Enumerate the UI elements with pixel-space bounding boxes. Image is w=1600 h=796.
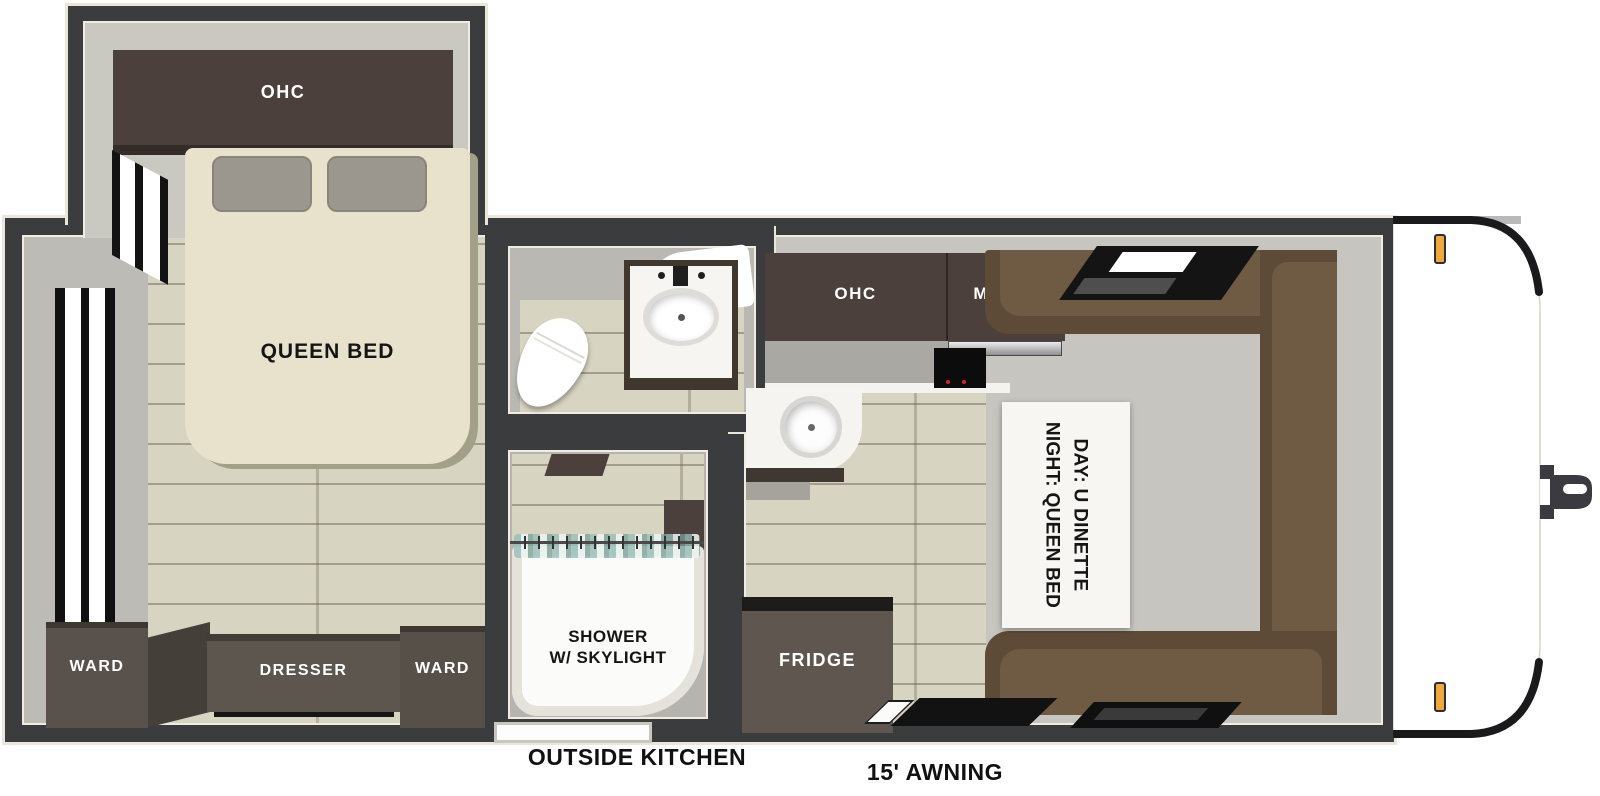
living-bottom-window-right-pane (1093, 708, 1208, 720)
shower-cabinet-patch-top (544, 454, 609, 476)
faucet-knob-right (698, 272, 705, 279)
counter-left-strip (746, 388, 770, 470)
counter-front-panel (746, 468, 844, 482)
shower-label: SHOWER W/ SKYLIGHT (512, 626, 704, 669)
marker-light-top-icon (1435, 235, 1445, 263)
hitch-slot (1563, 484, 1587, 494)
living-bottom-window-right-icon (1070, 702, 1241, 728)
faucet-icon (673, 266, 688, 286)
kitchen-ohc-label: OHC (765, 284, 946, 304)
curtain-hooks-icon (512, 536, 702, 549)
marker-light-bottom-icon (1435, 683, 1445, 711)
counter-front-shadow (746, 482, 810, 500)
outside-kitchen-label: OUTSIDE KITCHEN (497, 744, 777, 771)
ward-right-label: WARD (400, 660, 485, 678)
awning-label: 15' AWNING (815, 759, 1055, 786)
bedroom-ohc-label: OHC (113, 82, 453, 103)
ward-left-3d-face (146, 622, 210, 728)
shower-label-line1: SHOWER (568, 627, 648, 646)
toilet-seam2 (533, 337, 582, 364)
cap-body (1393, 220, 1540, 734)
cooktop-burner-light1 (946, 380, 950, 384)
kitchen-backsplash (765, 341, 948, 385)
dinette-label-line2: NIGHT: QUEEN BED (1042, 422, 1063, 608)
sink-drain-icon (678, 314, 685, 321)
living-top-window-pane2 (1073, 278, 1176, 294)
front-cap (1393, 207, 1600, 752)
pillow-left-icon (212, 156, 312, 212)
hitch-notch (1540, 479, 1550, 505)
shower-label-line2: W/ SKYLIGHT (550, 648, 667, 667)
floorplan-canvas: SHOWER W/ SKYLIGHT OHC QUEEN BED WARD DR… (0, 0, 1600, 796)
outside-kitchen-hatch (494, 722, 652, 743)
cooktop-icon (934, 348, 986, 388)
toilet-seam (536, 332, 585, 359)
bedroom-window-icon (55, 288, 115, 624)
kitchen-sink-drain-icon (808, 424, 815, 431)
cooktop-burner-light2 (962, 380, 966, 384)
dinette-table-label: DAY: U DINETTE NIGHT: QUEEN BED (1038, 402, 1093, 628)
faucet-knob-left (658, 272, 665, 279)
living-bottom-window-left-icon (891, 698, 1058, 726)
living-top-window-pane (1109, 252, 1197, 272)
dinette-label-line1: DAY: U DINETTE (1070, 438, 1091, 591)
pillow-right-icon (327, 156, 427, 212)
fridge-label: FRIDGE (742, 650, 893, 671)
dresser-label: DRESSER (207, 662, 400, 680)
dinette-table: DAY: U DINETTE NIGHT: QUEEN BED (1002, 402, 1130, 628)
ward-left-label: WARD (46, 658, 148, 676)
queen-bed-label: QUEEN BED (185, 340, 470, 364)
